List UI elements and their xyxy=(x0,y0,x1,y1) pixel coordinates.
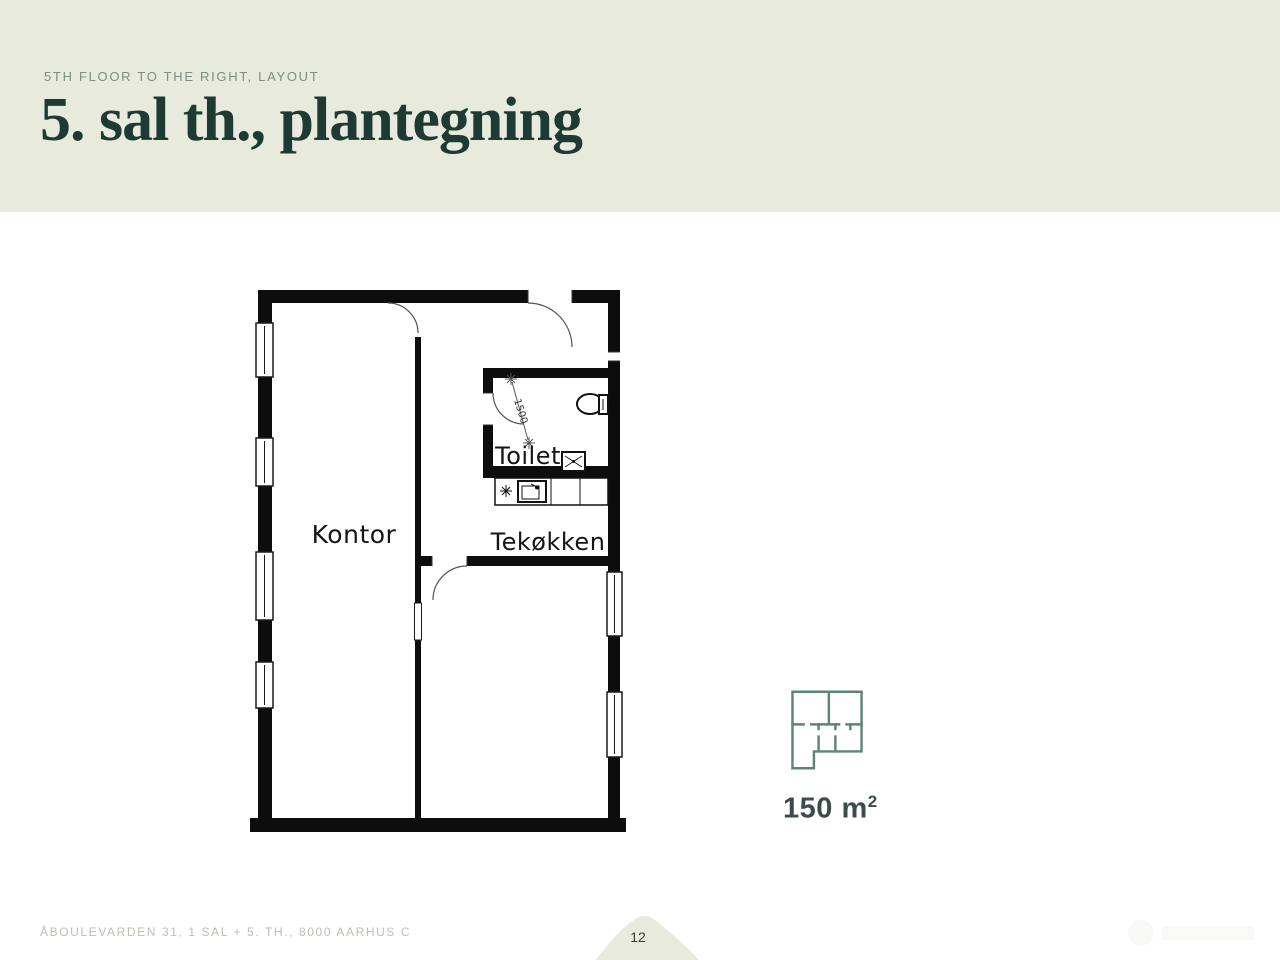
window-icon xyxy=(256,323,273,377)
header-band: 5TH FLOOR TO THE RIGHT, LAYOUT 5. sal th… xyxy=(0,0,1280,212)
room-label-kontor: Kontor xyxy=(312,520,397,549)
window-icon xyxy=(256,438,273,486)
watermark-wordmark xyxy=(1162,926,1254,940)
entrance-door-arc xyxy=(528,303,572,347)
wc-icon xyxy=(577,394,608,414)
eyebrow-text: 5TH FLOOR TO THE RIGHT, LAYOUT xyxy=(44,69,319,84)
area-label: 150 m2 xyxy=(783,792,878,826)
window-icon xyxy=(607,692,622,757)
watermark-emblem-icon xyxy=(1128,920,1154,946)
kitchen-sink-icon xyxy=(518,481,546,502)
plan-outline-icon xyxy=(785,684,869,776)
area-value: 150 m xyxy=(783,793,868,825)
door-jambs xyxy=(432,290,572,566)
room-label-tekokken: Tekøkken xyxy=(490,528,606,556)
page-number: 12 xyxy=(621,929,655,945)
window-icon xyxy=(607,572,622,636)
footer-address: ÅBOULEVARDEN 31, 1 SAL + 5. TH., 8000 AA… xyxy=(40,925,411,939)
tekokken-door-arc xyxy=(433,566,467,600)
kontor-door-arc xyxy=(388,303,418,333)
kitchen-counter xyxy=(495,478,608,505)
right-wall-notch xyxy=(608,352,620,361)
tekokken-wall xyxy=(421,556,608,566)
window-icon xyxy=(256,552,273,620)
room-label-toilet: Toilet xyxy=(494,442,561,470)
dimension-label: 1500 xyxy=(511,398,529,426)
washbasin-icon xyxy=(562,452,585,471)
watermark-logo xyxy=(1128,918,1263,948)
cased-opening xyxy=(415,603,422,640)
floor-plan: 1500 Kontor Toilet Tekøkken xyxy=(240,280,640,845)
window-icon xyxy=(256,662,273,708)
area-superscript: 2 xyxy=(868,792,878,811)
page-title: 5. sal th., plantegning xyxy=(40,86,582,154)
interior-wall xyxy=(415,337,421,818)
